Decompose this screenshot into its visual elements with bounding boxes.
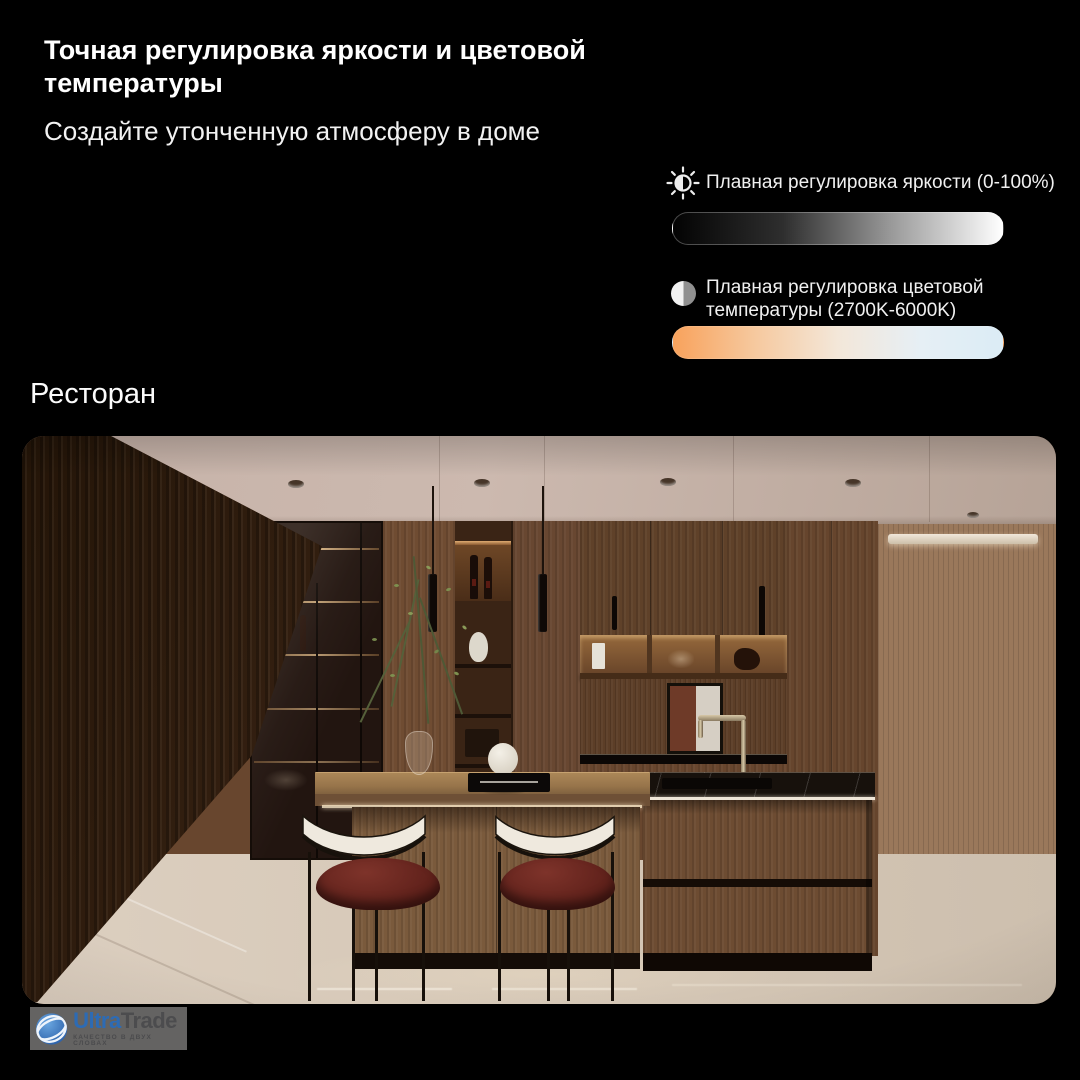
logo-text: UltraTrade КАЧЕСТВО В ДВУХ СЛОВАХ — [73, 1010, 187, 1048]
drawer-shadow — [643, 800, 872, 814]
downlight — [967, 512, 979, 518]
ceiling-seam — [439, 436, 440, 522]
downlight — [845, 479, 861, 487]
niche-divider — [647, 635, 652, 673]
downlight — [288, 480, 304, 488]
wine-glasses — [668, 650, 694, 668]
brightness-slider-track[interactable] — [672, 212, 1004, 245]
counter-toe-kick — [643, 953, 872, 971]
plant-stem — [391, 579, 420, 707]
pendant-cord — [542, 486, 544, 576]
leaf — [426, 565, 432, 570]
faucet-arm — [698, 715, 746, 721]
leaf — [454, 671, 460, 676]
sign-text — [480, 781, 538, 783]
niche-divider — [715, 635, 720, 673]
leaf — [408, 612, 413, 615]
table-sign — [468, 773, 550, 792]
drawer-side-shadow — [866, 800, 872, 953]
bar-stool — [300, 808, 442, 1004]
plant — [342, 554, 512, 744]
logo-brand-secondary: Trade — [121, 1008, 177, 1033]
color-temp-label: Плавная регулировка цветовой температуры… — [706, 276, 1016, 322]
kitchen-photo — [22, 436, 1056, 1004]
leaf — [462, 625, 468, 631]
faucet-riser — [741, 720, 746, 777]
plant-stem — [413, 556, 430, 724]
logo-tagline: КАЧЕСТВО В ДВУХ СЛОВАХ — [73, 1035, 187, 1048]
right-wall-light-strip — [888, 534, 1038, 544]
ceiling-seam — [544, 436, 545, 522]
brightness-label: Плавная регулировка яркости (0-100%) — [706, 172, 1055, 194]
upper-cabinets — [580, 521, 787, 635]
color-temp-slider-track[interactable] — [672, 326, 1004, 359]
faucet-spout — [698, 720, 703, 738]
brightness-icon — [666, 166, 700, 200]
stool-leg — [611, 852, 614, 1001]
logo-brand-primary: Ultra — [73, 1008, 121, 1033]
drawer-unit — [643, 800, 872, 953]
leaf — [446, 587, 452, 592]
ceiling-seam — [929, 436, 930, 522]
dark-sculpture — [734, 648, 760, 670]
sink — [662, 778, 772, 789]
leaf — [372, 638, 377, 641]
leaf — [390, 674, 395, 677]
cabinet-handle — [612, 596, 617, 630]
pumpkin-ornament — [488, 743, 518, 775]
door-seam — [650, 521, 651, 635]
marketing-banner: Точная регулировка яркости и цветовой те… — [0, 0, 1080, 1080]
marble-counter — [638, 772, 875, 798]
ceiling-seam — [733, 436, 734, 522]
contrast-icon — [670, 280, 697, 307]
stool-leg — [498, 852, 501, 1001]
door-seam — [722, 521, 723, 635]
page-title: Точная регулировка яркости и цветовой те… — [44, 34, 684, 100]
stool-leg — [308, 852, 311, 1001]
scene-label: Ресторан — [30, 378, 156, 411]
stool-seat — [500, 858, 615, 910]
page-subtitle: Создайте утонченную атмосферу в доме — [44, 116, 684, 147]
brand-logo: UltraTrade КАЧЕСТВО В ДВУХ СЛОВАХ — [30, 1007, 187, 1050]
backsplash-ledge — [580, 754, 787, 764]
stool-seat — [316, 858, 440, 910]
plant-stem — [360, 621, 411, 723]
pendant-lamp — [538, 574, 547, 632]
bar-stool — [493, 808, 635, 1004]
lit-niche — [580, 635, 787, 673]
downlight — [660, 478, 676, 486]
milk-carton — [592, 643, 605, 669]
drawer-gap — [643, 879, 872, 887]
downlight — [474, 479, 490, 487]
floor-reflection — [672, 984, 1022, 986]
right-wall — [878, 524, 1056, 864]
globe-icon — [33, 1010, 70, 1048]
leaf — [394, 584, 399, 587]
